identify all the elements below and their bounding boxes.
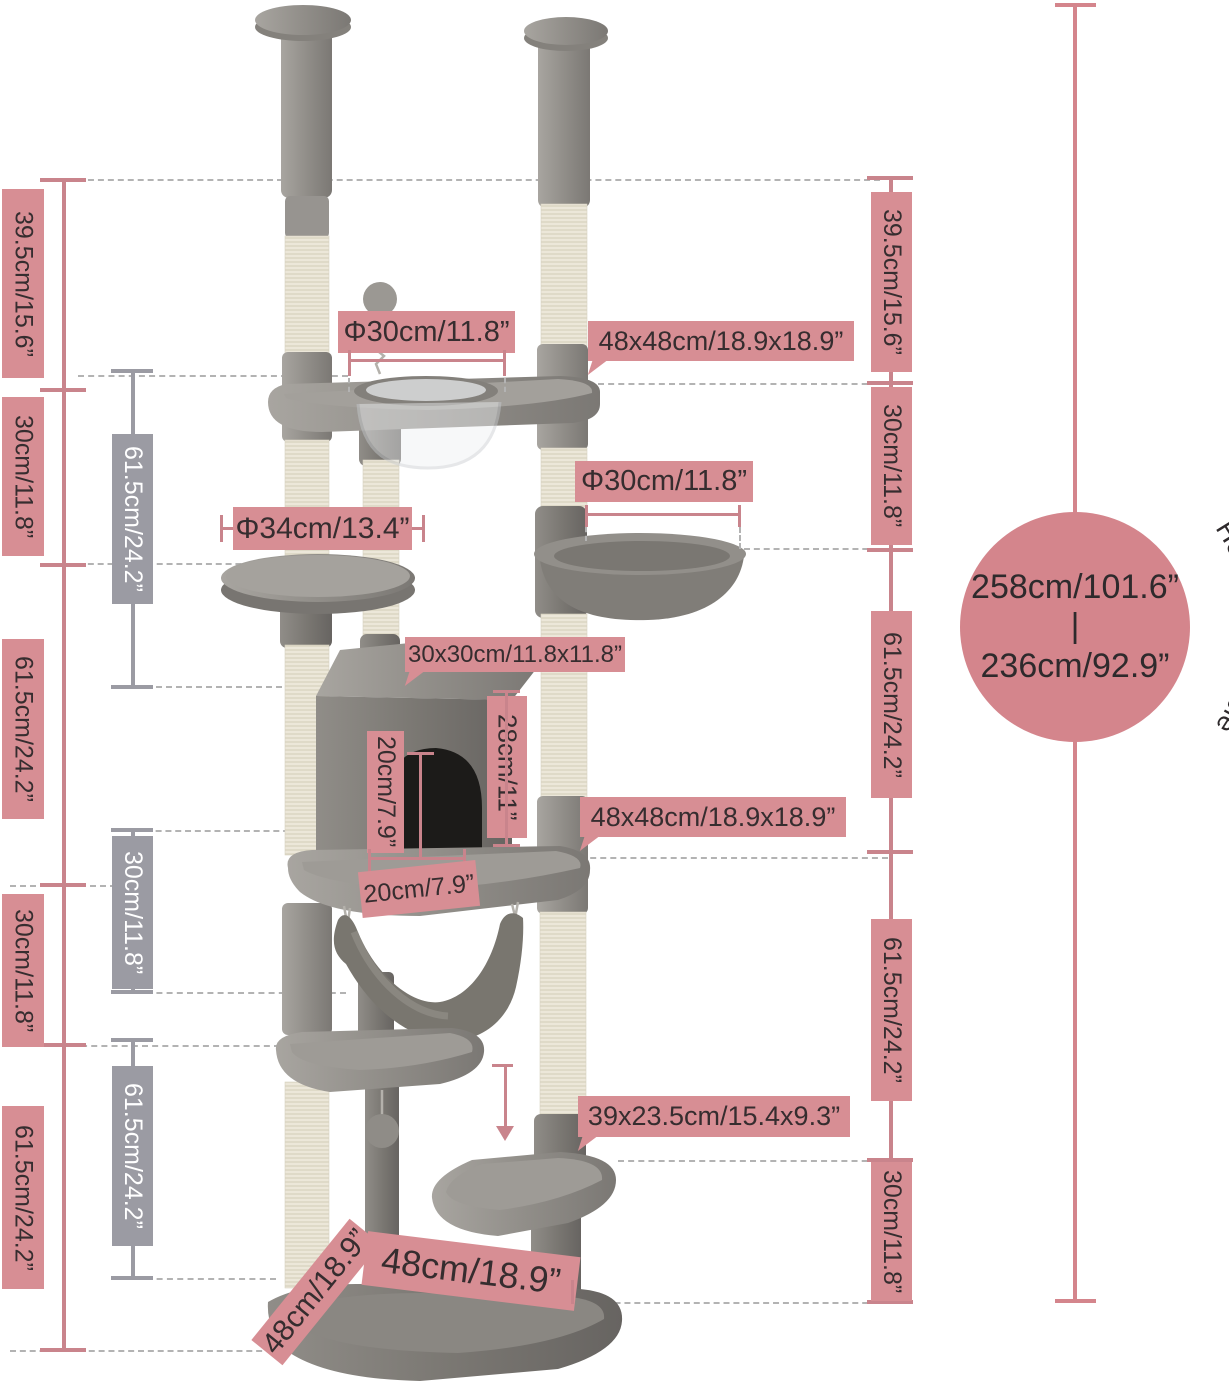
svg-text:Height Adjustable: Height Adjustable	[1210, 515, 1229, 738]
height-adjustable-text: Height Adjustable	[1210, 515, 1229, 738]
product-dimension-diagram: 39.5cm/15.6” 30cm/11.8” 61.5cm/24.2” 30c…	[0, 0, 1229, 1382]
height-adjustable-arc: Height Adjustable	[0, 0, 1229, 1382]
